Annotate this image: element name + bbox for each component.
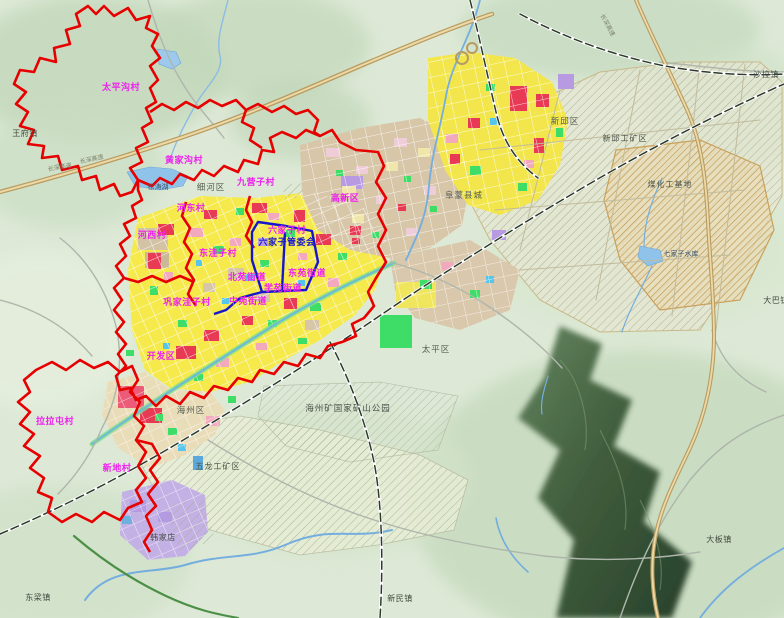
huangjiagou-village-label: 黄家沟村: [165, 154, 203, 165]
development-zone-label: 开发区: [147, 350, 176, 361]
liujiazi-committee-label: 六家子管委会: [258, 236, 316, 247]
daba-town-label: 大巴镇: [763, 295, 784, 305]
lalatun-village-label: 拉拉屯村: [36, 415, 74, 426]
jiuyingzi-village-label: 九营子村: [236, 176, 275, 187]
hexi-village-label: 河西村: [138, 229, 167, 240]
map-canvas: 太平沟村 黄家沟村 九营子村 河东村 河西村 六家子村 东洼子村 北苑街道 东苑…: [0, 0, 784, 618]
shala-town-label: 沙拉镇: [753, 69, 779, 79]
dongwazi-village-label: 东洼子村: [199, 247, 237, 258]
hanjiadian-label: 韩家店: [150, 532, 176, 542]
xindi-village-label: 新地村: [103, 462, 132, 473]
xinqiu-mining-area-label: 新邱工矿区: [603, 133, 648, 143]
taiping-district-label: 太平区: [422, 344, 451, 354]
zhongyuan-subdistrict-label: 中苑街道: [229, 295, 267, 306]
xihe-district-label: 细河区: [197, 182, 226, 192]
xinqiu-district-label: 新邱区: [551, 116, 580, 126]
gongjiawazi-village-label: 巩家洼子村: [163, 296, 211, 307]
taipinggou-village-label: 太平沟村: [101, 81, 140, 92]
dongyuan-subdistrict-label: 东苑街道: [288, 267, 326, 278]
xueyuan-subdistrict-label: 学苑街道: [264, 282, 302, 293]
wangfu-town-label: 王府镇: [12, 128, 38, 138]
planning-map[interactable]: 太平沟村 黄家沟村 九营子村 河东村 河西村 六家子村 东洼子村 北苑街道 东苑…: [0, 0, 784, 618]
wulong-mining-area-label: 五龙工矿区: [196, 461, 241, 471]
qijiazi-reservoir-label: 七家子水库: [664, 249, 699, 258]
coal-chemical-base-label: 煤化工基地: [648, 179, 693, 189]
daban-town-label: 大板镇: [706, 534, 732, 544]
xinmin-town-label: 新民镇: [387, 593, 413, 603]
songtao-lake-label: 松涛湖: [148, 182, 169, 191]
fumeng-county-seat-label: 阜蒙县城: [445, 190, 483, 200]
beiyuan-subdistrict-label: 北苑街道: [228, 271, 266, 282]
haizhou-mine-park-label: 海州矿国家矿山公园: [305, 403, 391, 413]
hedong-village-label: 河东村: [177, 202, 206, 213]
haizhou-district-label: 海州区: [177, 405, 206, 415]
dongliang-town-label: 东梁镇: [25, 592, 51, 602]
liujiazi-village-label: 六家子村: [268, 224, 306, 235]
hightech-zone-label: 高新区: [331, 192, 360, 203]
